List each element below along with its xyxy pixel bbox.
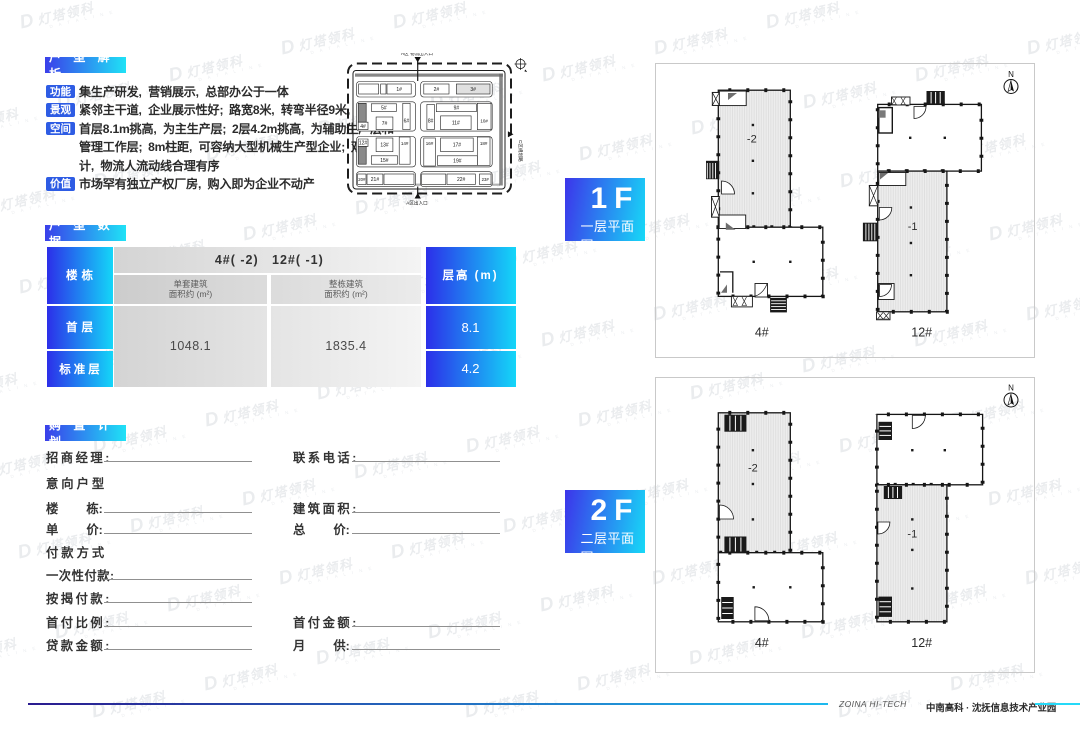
- svg-text:-2: -2: [747, 133, 757, 145]
- svg-text:20#: 20#: [358, 177, 366, 182]
- svg-text:8#: 8#: [428, 118, 434, 124]
- svg-text:22#: 22#: [457, 177, 466, 183]
- svg-text:-1: -1: [907, 529, 917, 541]
- svg-text:17#: 17#: [453, 143, 462, 149]
- svg-text:12#: 12#: [911, 325, 932, 339]
- svg-text:16#: 16#: [426, 141, 434, 146]
- svg-text:4#: 4#: [755, 636, 769, 650]
- svg-text:1#: 1#: [396, 87, 402, 93]
- svg-text:5#: 5#: [381, 105, 387, 111]
- svg-text:N: N: [1008, 70, 1014, 79]
- svg-text:4#: 4#: [755, 325, 769, 339]
- svg-text:13#: 13#: [380, 143, 389, 149]
- svg-text:14#: 14#: [401, 141, 409, 146]
- svg-text:10#: 10#: [480, 118, 488, 123]
- svg-text:12#: 12#: [359, 141, 368, 147]
- svg-text:-1: -1: [908, 221, 918, 233]
- svg-text:21#: 21#: [371, 177, 380, 183]
- svg-text:18#: 18#: [480, 141, 488, 146]
- svg-text:15#: 15#: [380, 158, 389, 164]
- svg-text:12#: 12#: [911, 636, 932, 650]
- svg-text:7#: 7#: [382, 121, 388, 127]
- svg-text:-2: -2: [748, 463, 758, 475]
- svg-text:N: N: [1008, 384, 1014, 393]
- svg-text:A区 物流出入口: A区 物流出入口: [401, 53, 433, 57]
- svg-text:2#: 2#: [434, 87, 440, 93]
- svg-text:3#: 3#: [470, 87, 476, 93]
- svg-text:6#: 6#: [404, 118, 410, 124]
- svg-text:4#: 4#: [360, 124, 366, 130]
- svg-text:23#: 23#: [482, 177, 490, 182]
- svg-text:9#: 9#: [454, 106, 460, 112]
- svg-text:A区出入口: A区出入口: [406, 200, 428, 207]
- svg-text:C区规划路: C区规划路: [517, 140, 524, 162]
- svg-text:11#: 11#: [452, 121, 460, 127]
- svg-text:19#: 19#: [453, 158, 462, 164]
